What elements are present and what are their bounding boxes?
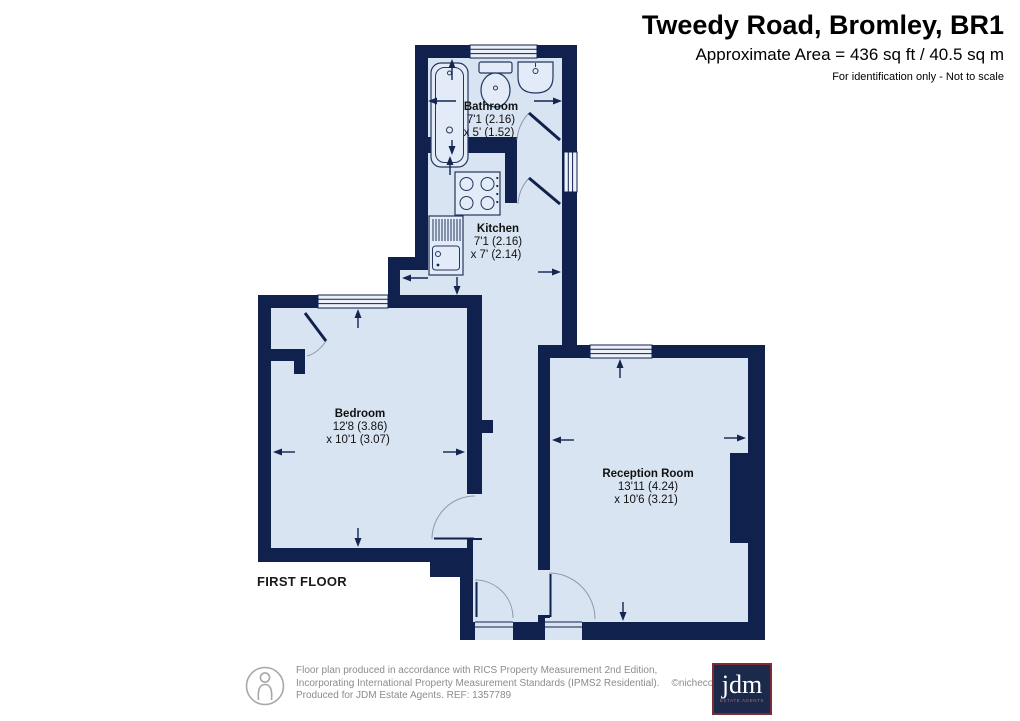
floorplan-page: Bathroom 7'1 (2.16) x 5' (1.52) Kitchen … [0,0,1020,721]
entrance-door-opening [475,618,513,640]
footer: Floor plan produced in accordance with R… [244,665,749,707]
bedroom-window [318,295,388,308]
hob-icon [455,172,500,215]
bedroom-dim2: x 10'1 (3.07) [326,434,390,446]
wash-basin-icon [518,62,553,93]
kitchen-label: Kitchen [477,223,519,235]
reception-label: Reception Room [602,468,693,480]
footer-text: Floor plan produced in accordance with R… [296,665,749,703]
bathroom-dim1: 7'1 (2.16) [467,114,515,126]
footer-line-1: Floor plan produced in accordance with R… [296,665,749,678]
floor-label: FIRST FLOOR [257,574,347,589]
disclaimer-note: For identification only - Not to scale [642,71,1004,83]
kitchen-dim1: 7'1 (2.16) [474,236,522,248]
closet-wall-stub [294,349,305,374]
second-entrance-door-opening [545,618,582,640]
person-badge-icon [244,665,286,707]
reception-window [590,345,652,358]
footer-line-3: Produced for JDM Estate Agents. REF: 135… [296,690,749,703]
footer-line-2: Incorporating International Property Mea… [296,678,749,691]
header: Tweedy Road, Bromley, BR1 Approximate Ar… [642,10,1004,83]
bathroom-label: Bathroom [464,101,518,113]
reception-dim1: 13'11 (4.24) [618,481,678,493]
landing-window [564,152,577,192]
bedroom-dim1: 12'8 (3.86) [333,421,388,433]
reception-dim2: x 10'6 (3.21) [614,494,678,506]
bathroom-dim2: x 5' (1.52) [464,127,515,139]
floorplan-svg: Bathroom 7'1 (2.16) x 5' (1.52) Kitchen … [0,0,1020,721]
jdm-logo: jdm ESTATE AGENTS [712,663,772,715]
bedroom-door-opening [467,494,482,538]
reception-door-opening [538,570,550,615]
bedroom-label: Bedroom [335,408,385,420]
bathroom-window [470,45,537,58]
jdm-logo-brand: jdm [722,673,762,697]
hallway-wall-stub [482,420,493,433]
bathtub-icon [431,63,468,167]
kitchen-sink-icon [429,216,463,275]
approximate-area: Approximate Area = 436 sq ft / 40.5 sq m [642,45,1004,65]
jdm-logo-tagline: ESTATE AGENTS [720,698,764,703]
page-title: Tweedy Road, Bromley, BR1 [642,10,1004,40]
kitchen-dim2: x 7' (2.14) [471,249,522,261]
